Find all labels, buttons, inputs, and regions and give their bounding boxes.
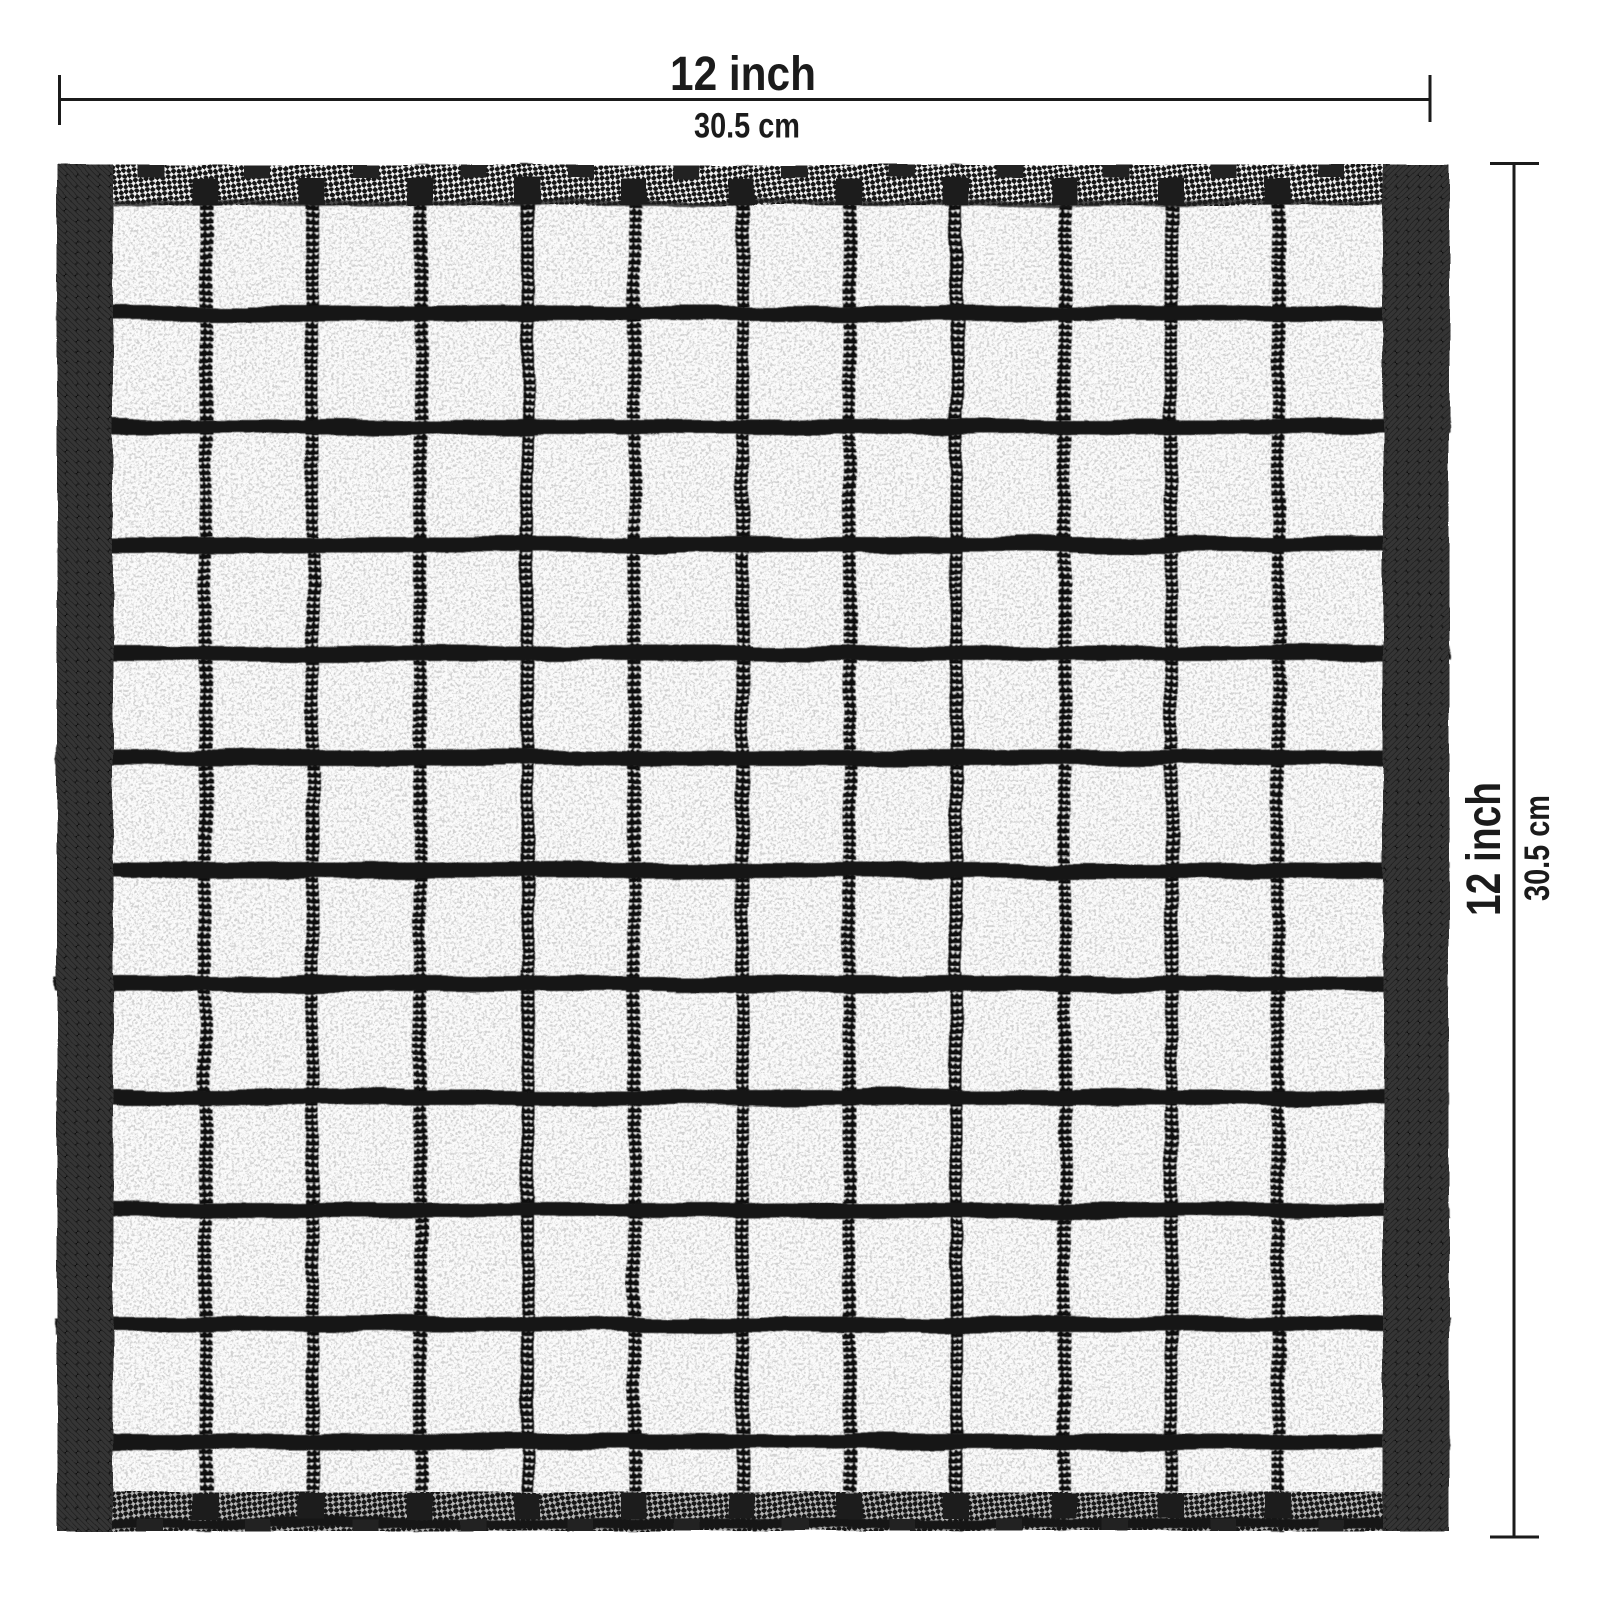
svg-text:12 inch: 12 inch xyxy=(1458,782,1511,916)
svg-text:30.5 cm: 30.5 cm xyxy=(1518,795,1557,901)
svg-text:30.5 cm: 30.5 cm xyxy=(694,107,800,146)
svg-text:12 inch: 12 inch xyxy=(670,48,816,101)
